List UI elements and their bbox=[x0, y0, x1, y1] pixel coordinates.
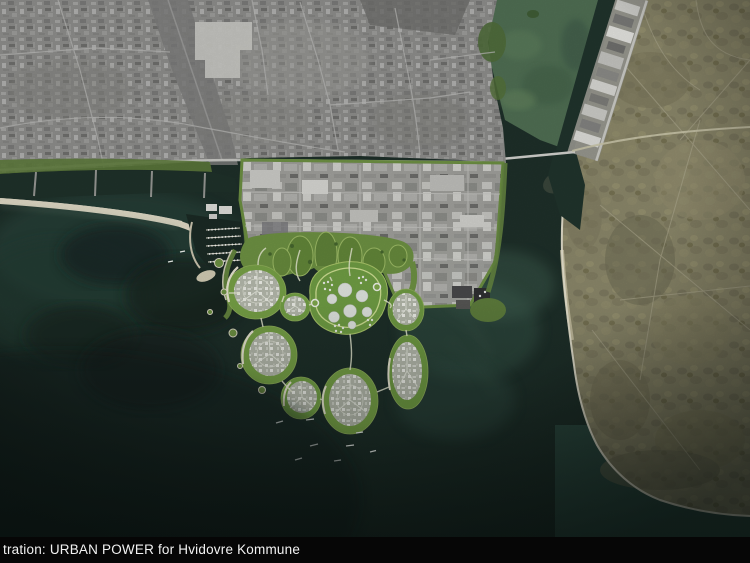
aerial-visualization: tration: URBAN POWER for Hvidovre Kommun… bbox=[0, 0, 750, 563]
caption-text: tration: URBAN POWER for Hvidovre Kommun… bbox=[0, 537, 750, 563]
caption-bar: tration: URBAN POWER for Hvidovre Kommun… bbox=[0, 537, 750, 563]
vignette-overlay bbox=[0, 0, 750, 537]
aerial-map bbox=[0, 0, 750, 537]
